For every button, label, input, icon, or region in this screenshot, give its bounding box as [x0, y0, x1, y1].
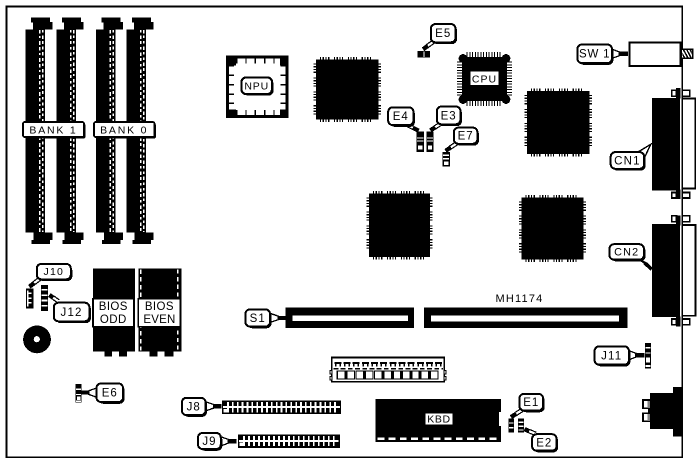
svg-text:SW 1: SW 1	[579, 49, 610, 61]
svg-text:CN2: CN2	[614, 247, 639, 259]
svg-text:CN1: CN1	[614, 155, 641, 167]
svg-text:EVEN: EVEN	[143, 314, 175, 326]
svg-text:BANK 0: BANK 0	[100, 124, 148, 136]
svg-text:E1: E1	[523, 397, 539, 409]
svg-text:E3: E3	[441, 110, 457, 122]
svg-text:J9: J9	[202, 436, 216, 448]
svg-text:ODD: ODD	[100, 314, 127, 326]
svg-text:BANK 1: BANK 1	[29, 124, 77, 136]
svg-text:J11: J11	[601, 350, 622, 362]
svg-text:E5: E5	[435, 28, 451, 40]
svg-text:S1: S1	[250, 313, 266, 325]
svg-text:E6: E6	[102, 388, 118, 400]
svg-text:E2: E2	[536, 437, 552, 449]
svg-text:MH1174: MH1174	[496, 293, 544, 305]
svg-text:NPU: NPU	[244, 81, 269, 93]
svg-text:J12: J12	[61, 307, 83, 319]
svg-text:KBD: KBD	[427, 414, 450, 426]
svg-text:E4: E4	[393, 111, 409, 123]
svg-text:J10: J10	[44, 266, 65, 278]
svg-text:CPU: CPU	[472, 74, 497, 86]
svg-text:BIOS: BIOS	[99, 301, 128, 313]
svg-text:BIOS: BIOS	[145, 301, 174, 313]
svg-text:J8: J8	[187, 401, 201, 413]
svg-text:E7: E7	[458, 131, 474, 143]
